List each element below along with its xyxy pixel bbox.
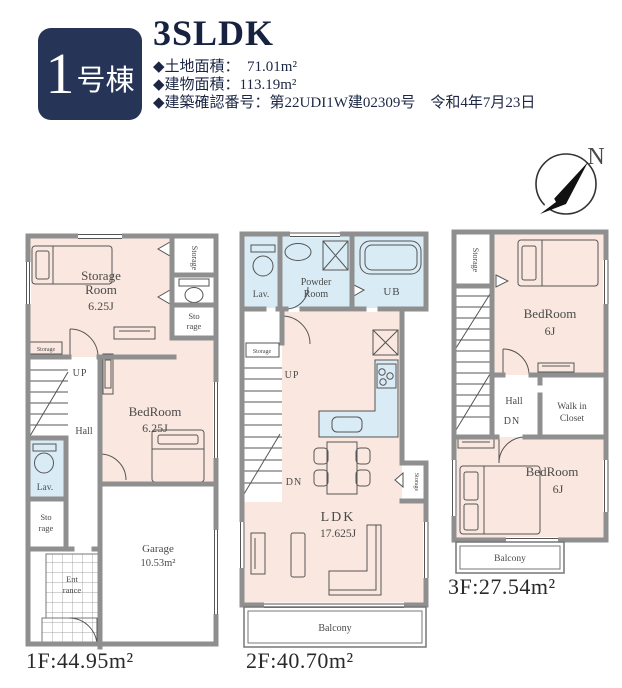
wic-label-2: Closet: [560, 414, 585, 424]
storage-right-label: Sto: [188, 311, 199, 321]
storage-top-right-label: Storage: [190, 246, 199, 271]
balcony-label: Balcony: [494, 554, 526, 564]
confirmation-number-line: ◆建築確認番号：第22UDI1W建02309号 令和4年7月23日: [153, 91, 535, 112]
entrance-label-2: rance: [63, 585, 82, 595]
ldk-size: 17.625J: [320, 528, 357, 540]
bedroom-label: BedRoom: [129, 404, 182, 419]
floor3-area-label: 3F:27.54m²: [448, 574, 556, 600]
lav-label: Lav.: [253, 290, 270, 300]
bedroom-bottom-size: 6J: [553, 482, 564, 496]
compass-north-label: N: [587, 144, 604, 170]
bedroom-bottom-label: BedRoom: [526, 464, 579, 479]
bedroom-size: 6.25J: [142, 421, 168, 435]
ub-label: UB: [383, 286, 400, 298]
bedroom-top-label: BedRoom: [524, 306, 577, 321]
storage-right-label-2: rage: [187, 321, 202, 331]
badge-number: 1: [45, 45, 74, 103]
storage-room-label: Storage: [81, 268, 121, 283]
room-fills-3f: [454, 232, 606, 540]
balcony-label: Balcony: [318, 623, 351, 634]
up-label: UP: [73, 368, 88, 379]
floor-plan-1f: Storage Room 6.25J Storage Sto rage Stor…: [22, 222, 220, 664]
hall-label: Hall: [75, 426, 92, 437]
powder-room-label-2: Room: [304, 289, 329, 300]
badge-suffix: 号棟: [76, 53, 134, 96]
garage-size: 10.53m²: [141, 558, 176, 569]
bedroom-top-size: 6J: [545, 324, 556, 338]
storage-label: Storage: [471, 248, 480, 273]
storage-lower-label-2: rage: [39, 523, 54, 533]
floor2-area-label: 2F:40.70m²: [246, 648, 354, 674]
floor1-area-label: 1F:44.95m²: [26, 648, 134, 674]
storage-small-label: Storage: [37, 347, 56, 353]
layout-title: 3SLDK: [153, 12, 274, 54]
storage-right-label: Storage: [413, 473, 419, 492]
hall-label: Hall: [505, 396, 522, 407]
storage-small-label: Storage: [253, 349, 272, 355]
building-number-badge: 1 号棟: [38, 28, 142, 120]
dn-label: DN: [504, 416, 520, 427]
ldk-label: LDK: [321, 510, 356, 525]
storage-lower-label: Sto: [40, 512, 51, 522]
lav-label: Lav.: [37, 483, 54, 493]
compass-icon: N: [524, 134, 620, 230]
storage-room-label-2: Room: [85, 282, 117, 297]
entrance-label: Ent: [66, 574, 78, 584]
storage-room-size: 6.25J: [88, 299, 114, 313]
floor-plan-2f: Lav. Powder Room UB Storage UP DN LDK 17…: [234, 222, 432, 658]
floor-plan-3f: Storage BedRoom 6J Hall DN Walk in Close…: [446, 220, 614, 580]
flyer-page: 1 号棟 3SLDK ◆土地面積： 71.01m² ◆建物面積：113.19m²…: [0, 0, 622, 688]
powder-room-label: Powder: [301, 277, 332, 288]
up-label: UP: [285, 370, 300, 381]
garage-label: Garage: [142, 543, 174, 555]
dn-label: DN: [286, 477, 302, 488]
wic-label: Walk in: [557, 402, 587, 412]
